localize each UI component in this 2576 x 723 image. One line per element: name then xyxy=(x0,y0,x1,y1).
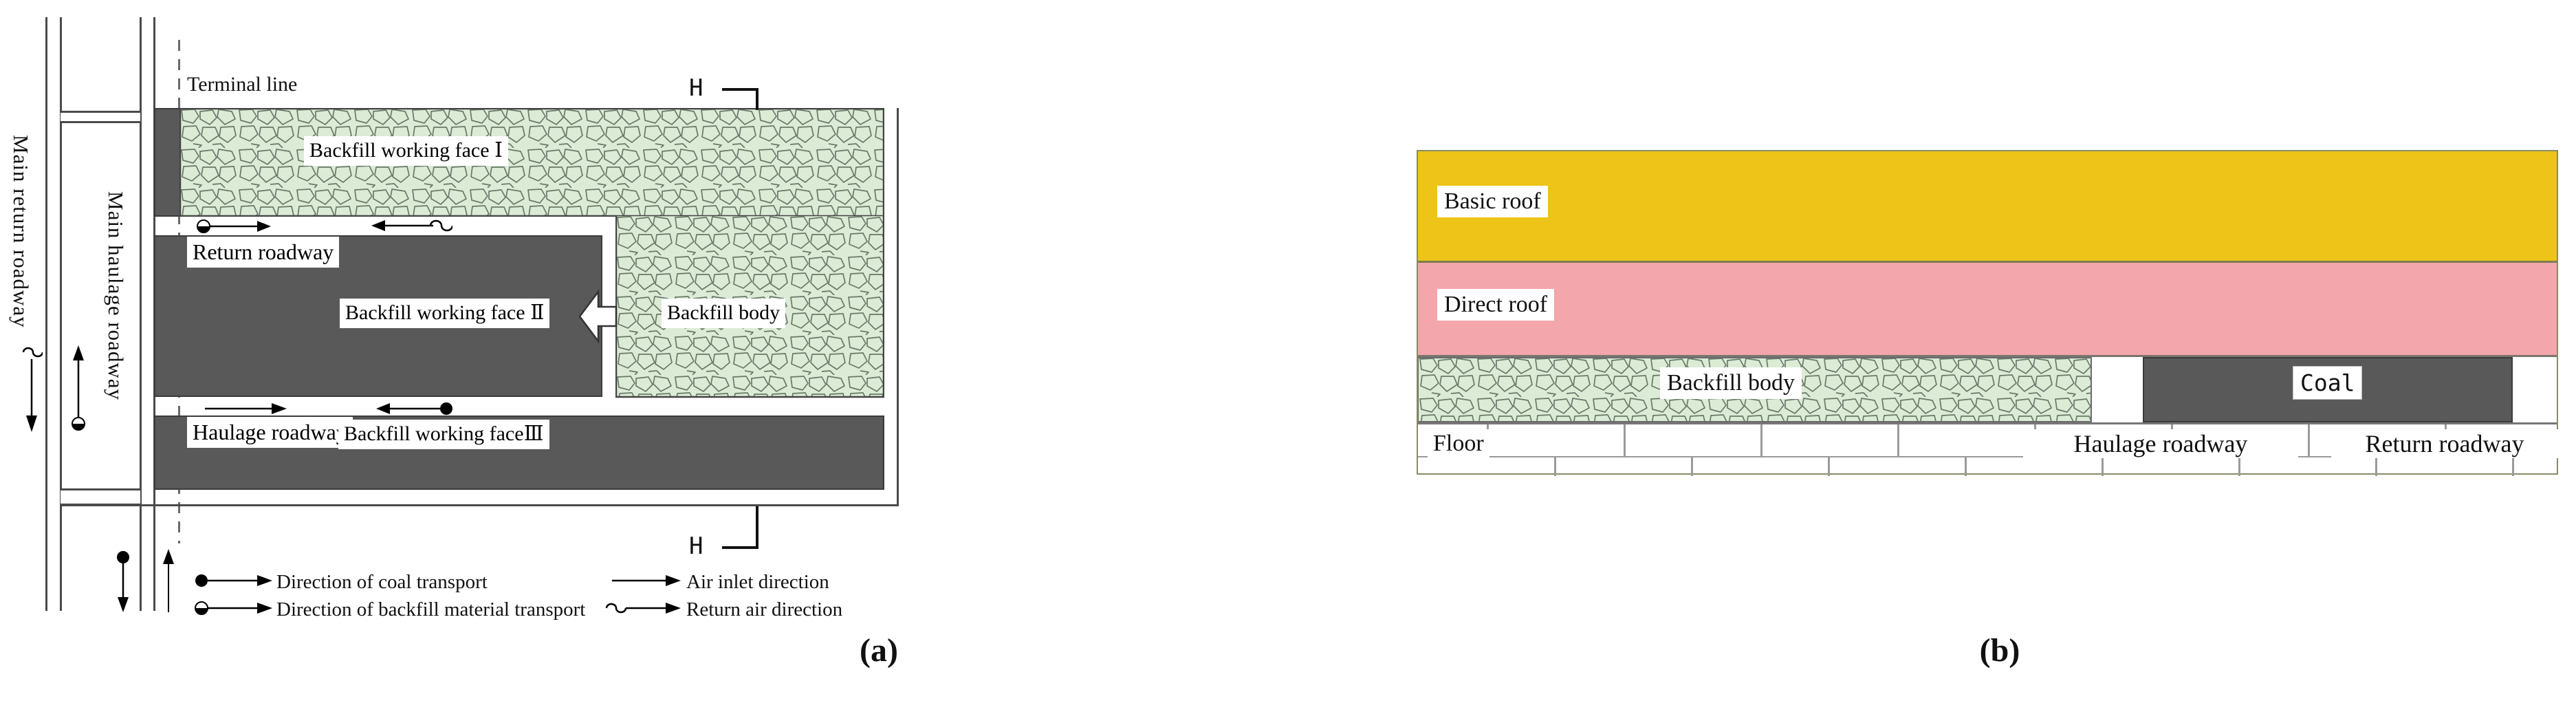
haulage-roadway-label: Haulage roadway xyxy=(187,417,353,448)
section-bracket-bottom-v xyxy=(756,506,758,549)
direct-roof-label: Direct roof xyxy=(1437,289,1554,321)
legend-backfill-transport-icon xyxy=(194,597,274,619)
backfill-transport-arrow-right xyxy=(194,216,273,237)
caption-b: (b) xyxy=(1910,632,2089,669)
floor-label: Floor xyxy=(1428,429,1489,458)
section-marker-top: H xyxy=(689,74,703,102)
panel-bottom-boundary xyxy=(61,504,899,506)
caption-a: (a) xyxy=(789,632,968,669)
backfill-body-label: Backfill body xyxy=(662,299,785,328)
backfill-working-face-2-label: Backfill working face Ⅱ xyxy=(340,299,549,328)
crosscut-lower xyxy=(61,488,140,506)
main-return-roadway-label: Main return roadway xyxy=(8,110,33,352)
basic-roof-stratum xyxy=(1418,151,2557,263)
return-air-down-symbol xyxy=(21,344,43,433)
main-haulage-roadway-label: Main haulage roadway xyxy=(103,157,128,435)
return-roadway-label: Return roadway xyxy=(187,237,339,268)
legend-backfill-transport-label: Direction of backfill material transport xyxy=(276,598,585,621)
section-bracket-top-v xyxy=(756,88,758,110)
basic-roof-label: Basic roof xyxy=(1437,186,1548,217)
backfill-up-symbol xyxy=(67,344,89,433)
backfill-working-face-3-label: Backfill working faceⅢ xyxy=(338,420,549,449)
panel-b-section-view: Basic roof Direct roof Backfill body Coa… xyxy=(1417,150,2558,475)
legend-air-inlet-icon xyxy=(611,570,682,592)
legend-return-air-label: Return air direction xyxy=(686,598,842,621)
backfill-working-face-1-label: Backfill working face Ⅰ xyxy=(304,136,508,166)
section-bracket-top-h xyxy=(722,88,758,91)
panel-a-plan-view: Main return roadway Main haulage roadway… xyxy=(0,0,963,723)
main-return-roadway-channel xyxy=(45,17,62,611)
coal-transport-down-symbol xyxy=(112,550,134,614)
floor-brick-row-2 xyxy=(1418,456,2557,476)
legend-coal-transport-label: Direction of coal transport xyxy=(276,571,488,594)
backfill-body-label-b: Backfill body xyxy=(1660,367,1802,399)
coal-pillar-strip xyxy=(154,108,181,217)
coal-label: Coal xyxy=(2293,366,2362,400)
advance-direction-block-arrow xyxy=(578,288,618,345)
legend-coal-transport-icon xyxy=(194,570,274,592)
crosscut-upper xyxy=(61,111,140,123)
legend-air-inlet-label: Air inlet direction xyxy=(686,571,829,594)
direct-roof-stratum xyxy=(1418,263,2557,357)
haulage-roadway-label-b: Haulage roadway xyxy=(2023,429,2298,458)
panel-right-boundary xyxy=(897,108,899,506)
section-marker-bottom: H xyxy=(689,532,703,560)
return-air-arrow-left xyxy=(370,215,452,238)
terminal-line-label: Terminal line xyxy=(187,73,297,96)
return-roadway-label-b: Return roadway xyxy=(2331,429,2558,458)
main-haulage-roadway-channel xyxy=(140,17,155,611)
air-inlet-up-symbol xyxy=(157,548,179,614)
section-bracket-bottom-h xyxy=(722,546,758,549)
backfill-band-face1 xyxy=(179,108,884,217)
legend-return-air-icon xyxy=(605,597,682,619)
